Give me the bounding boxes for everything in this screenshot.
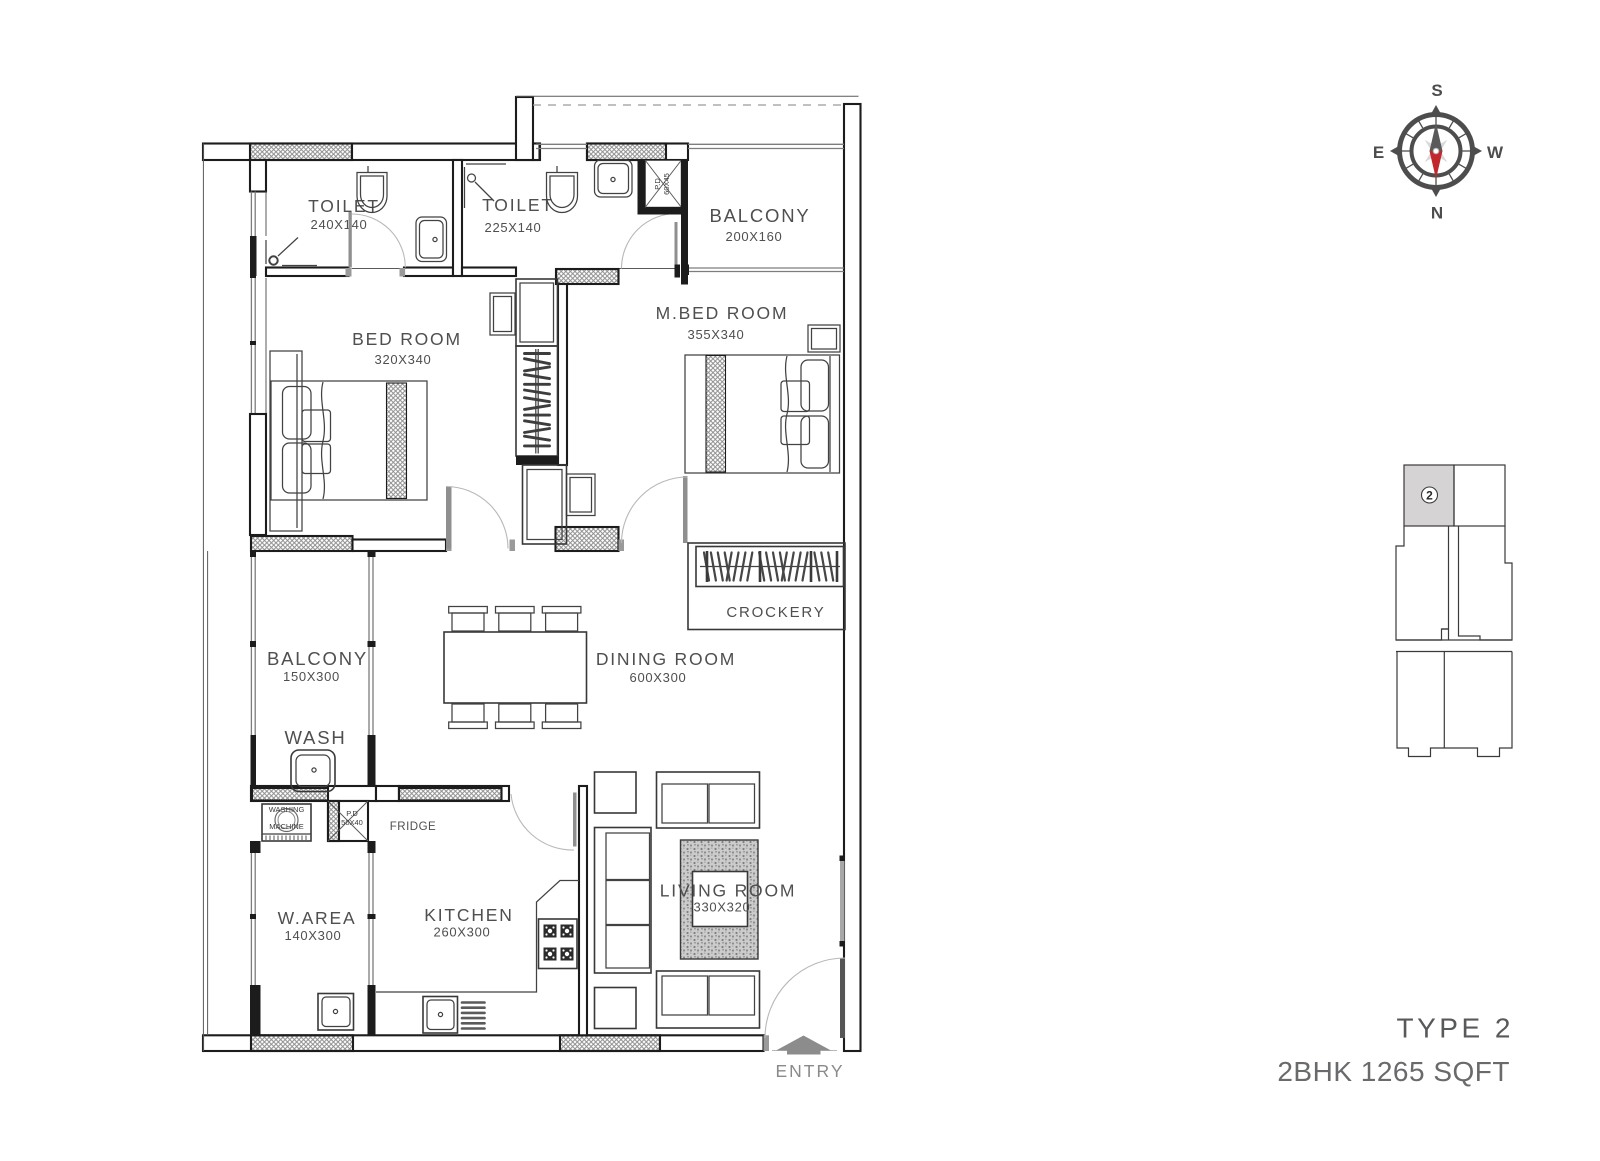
svg-text:KITCHEN: KITCHEN bbox=[424, 905, 513, 925]
svg-text:W: W bbox=[1487, 143, 1504, 162]
svg-text:MACHINE: MACHINE bbox=[269, 822, 304, 831]
svg-text:150X300: 150X300 bbox=[283, 669, 340, 684]
svg-text:TOILET: TOILET bbox=[308, 196, 380, 216]
svg-text:W.AREA: W.AREA bbox=[278, 908, 357, 928]
svg-text:200X160: 200X160 bbox=[726, 229, 783, 244]
svg-text:320X340: 320X340 bbox=[375, 352, 432, 367]
svg-text:600X300: 600X300 bbox=[630, 670, 687, 685]
svg-text:50X40: 50X40 bbox=[341, 818, 363, 827]
svg-text:330X320: 330X320 bbox=[694, 900, 751, 915]
svg-text:WASHING: WASHING bbox=[269, 805, 305, 814]
svg-text:TYPE 2: TYPE 2 bbox=[1397, 1013, 1514, 1044]
svg-text:TOILET: TOILET bbox=[482, 195, 554, 215]
svg-text:FRIDGE: FRIDGE bbox=[390, 821, 436, 833]
svg-text:LIVING ROOM: LIVING ROOM bbox=[660, 881, 796, 901]
svg-text:CROCKERY: CROCKERY bbox=[726, 604, 825, 621]
svg-text:P.D: P.D bbox=[346, 809, 358, 818]
svg-text:240X140: 240X140 bbox=[311, 217, 368, 232]
svg-text:225X140: 225X140 bbox=[485, 220, 542, 235]
svg-text:355X340: 355X340 bbox=[688, 327, 745, 342]
svg-text:60X45: 60X45 bbox=[662, 173, 671, 195]
svg-text:2: 2 bbox=[1426, 489, 1433, 503]
svg-text:E: E bbox=[1373, 143, 1384, 162]
svg-text:BALCONY: BALCONY bbox=[709, 205, 810, 226]
svg-text:ENTRY: ENTRY bbox=[776, 1061, 845, 1081]
svg-text:2BHK 1265 SQFT: 2BHK 1265 SQFT bbox=[1277, 1056, 1510, 1087]
svg-text:BALCONY: BALCONY bbox=[267, 648, 368, 669]
svg-text:M.BED ROOM: M.BED ROOM bbox=[656, 303, 789, 323]
svg-text:S: S bbox=[1431, 81, 1442, 100]
svg-text:260X300: 260X300 bbox=[434, 925, 491, 940]
svg-text:140X300: 140X300 bbox=[285, 928, 342, 943]
svg-text:N: N bbox=[1431, 204, 1443, 223]
svg-text:BED ROOM: BED ROOM bbox=[352, 329, 462, 349]
svg-text:P.D: P.D bbox=[653, 178, 662, 190]
svg-text:DINING ROOM: DINING ROOM bbox=[596, 649, 736, 669]
svg-text:WASH: WASH bbox=[284, 727, 346, 748]
